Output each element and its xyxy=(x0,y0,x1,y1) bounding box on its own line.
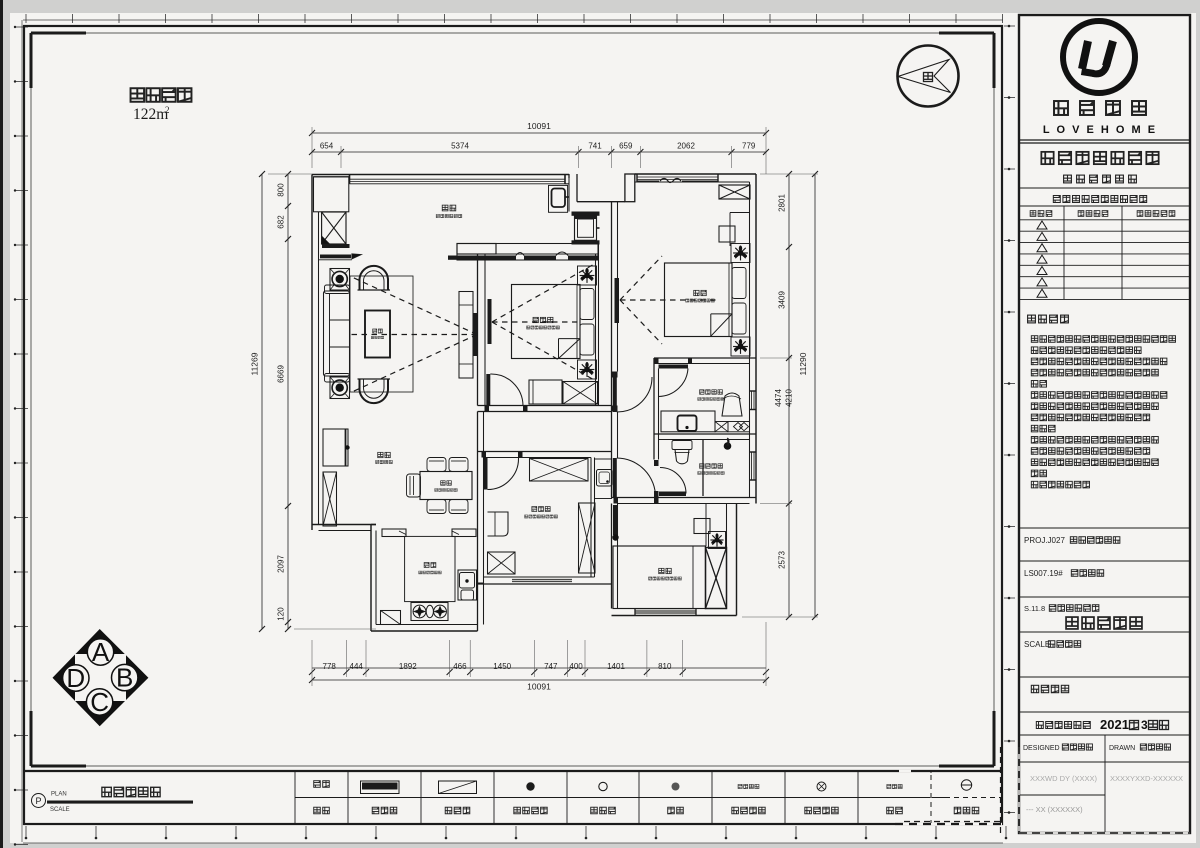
svg-text:PLAN: PLAN xyxy=(51,792,67,798)
svg-text:--- XX (XXXXXX): --- XX (XXXXXX) xyxy=(1026,805,1083,814)
svg-text:6669: 6669 xyxy=(277,365,286,383)
svg-text:466: 466 xyxy=(453,662,467,671)
svg-text:XXXWD DY (XXXX): XXXWD DY (XXXX) xyxy=(1030,774,1097,783)
svg-text:10091: 10091 xyxy=(527,121,551,131)
svg-text:SCALE: SCALE xyxy=(50,807,70,813)
svg-text:B: B xyxy=(116,663,133,693)
svg-text:4474: 4474 xyxy=(774,389,783,407)
svg-text:1892: 1892 xyxy=(399,662,417,671)
svg-text:2097: 2097 xyxy=(277,555,286,573)
svg-text:S.11.8: S.11.8 xyxy=(1024,604,1045,613)
svg-text:778: 778 xyxy=(323,662,337,671)
svg-text:2021: 2021 xyxy=(1100,717,1129,732)
svg-text:747: 747 xyxy=(544,662,558,671)
svg-text:400: 400 xyxy=(569,662,583,671)
svg-text:1401: 1401 xyxy=(607,662,625,671)
svg-text:2573: 2573 xyxy=(778,551,787,569)
svg-text:659: 659 xyxy=(619,142,633,151)
svg-text:11290: 11290 xyxy=(798,352,808,375)
svg-text:2801: 2801 xyxy=(778,194,787,212)
svg-text:2: 2 xyxy=(165,105,170,115)
svg-text:C: C xyxy=(90,687,109,717)
svg-text:4210: 4210 xyxy=(785,389,794,407)
svg-text:3: 3 xyxy=(1141,718,1148,732)
svg-text:810: 810 xyxy=(658,662,672,671)
svg-text:2062: 2062 xyxy=(677,142,695,151)
svg-text:1450: 1450 xyxy=(493,662,511,671)
svg-text:741: 741 xyxy=(588,142,602,151)
svg-text:800: 800 xyxy=(277,183,286,197)
svg-text:SCALE: SCALE xyxy=(1024,640,1050,649)
svg-text:3409: 3409 xyxy=(778,291,787,309)
svg-text:LS007.19#: LS007.19# xyxy=(1024,569,1063,578)
svg-text:XXXXYXXD-XXXXXX: XXXXYXXD-XXXXXX xyxy=(1110,774,1183,783)
svg-text:11269: 11269 xyxy=(250,352,260,375)
svg-text:A: A xyxy=(92,637,110,667)
svg-text:682: 682 xyxy=(277,215,286,229)
svg-text:PROJ.J027: PROJ.J027 xyxy=(1024,536,1065,545)
svg-text:5374: 5374 xyxy=(451,142,469,151)
svg-text:654: 654 xyxy=(320,142,334,151)
svg-text:P: P xyxy=(35,796,41,806)
svg-text:D: D xyxy=(66,663,85,693)
svg-text:120: 120 xyxy=(277,607,286,621)
svg-text:122m: 122m xyxy=(133,106,168,123)
svg-text:DRAWN: DRAWN xyxy=(1109,745,1135,752)
svg-text:L O V E H O M E: L O V E H O M E xyxy=(1043,124,1157,136)
svg-text:DESIGNED: DESIGNED xyxy=(1023,745,1060,752)
svg-text:444: 444 xyxy=(350,662,364,671)
svg-text:10091: 10091 xyxy=(527,682,551,692)
svg-text:779: 779 xyxy=(742,142,756,151)
